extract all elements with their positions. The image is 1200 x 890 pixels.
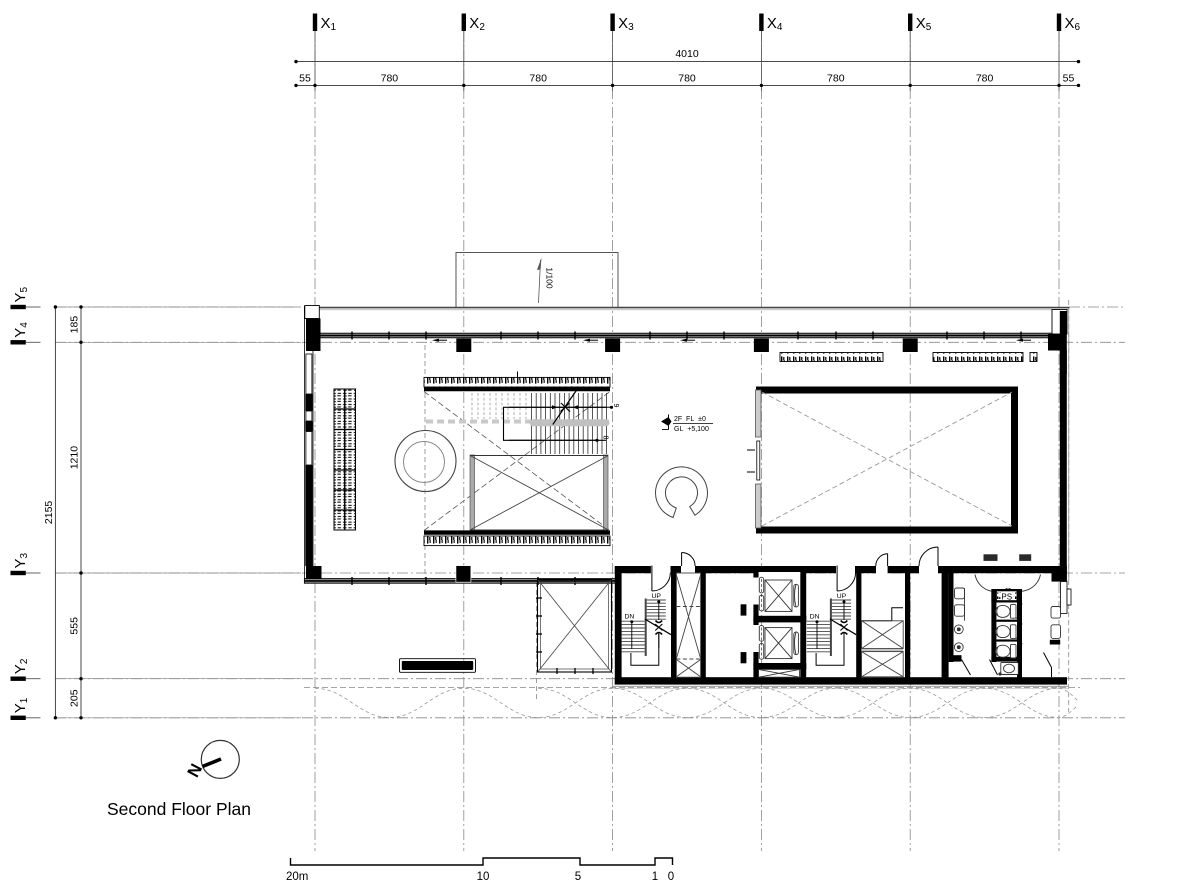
svg-text:10: 10 bbox=[477, 871, 490, 883]
svg-text:780: 780 bbox=[529, 73, 547, 85]
svg-text:555: 555 bbox=[69, 617, 81, 635]
svg-text:2F FL ±0: 2F FL ±0 bbox=[674, 416, 706, 423]
svg-text:780: 780 bbox=[678, 73, 696, 85]
svg-text:0: 0 bbox=[668, 871, 674, 883]
svg-text:55: 55 bbox=[1063, 73, 1075, 85]
svg-text:GL +5,100: GL +5,100 bbox=[674, 426, 709, 433]
svg-text:8: 8 bbox=[602, 436, 609, 440]
svg-text:UP: UP bbox=[652, 593, 662, 600]
svg-text:PS: PS bbox=[1001, 593, 1012, 602]
svg-text:205: 205 bbox=[69, 689, 81, 707]
svg-text:780: 780 bbox=[381, 73, 399, 85]
svg-text:1210: 1210 bbox=[69, 446, 81, 470]
svg-text:20m: 20m bbox=[286, 871, 308, 883]
svg-text:DN: DN bbox=[625, 614, 635, 621]
svg-text:4010: 4010 bbox=[675, 48, 699, 60]
svg-text:780: 780 bbox=[976, 73, 994, 85]
svg-text:Second Floor Plan: Second Floor Plan bbox=[107, 799, 251, 819]
svg-text:5: 5 bbox=[575, 871, 581, 883]
svg-text:UP: UP bbox=[837, 593, 847, 600]
svg-text:780: 780 bbox=[827, 73, 845, 85]
svg-text:9: 9 bbox=[612, 404, 619, 408]
svg-text:2155: 2155 bbox=[43, 501, 55, 525]
svg-text:DN: DN bbox=[810, 614, 820, 621]
svg-text:55: 55 bbox=[299, 73, 311, 85]
svg-text:1/100: 1/100 bbox=[545, 267, 555, 289]
svg-text:1: 1 bbox=[652, 871, 658, 883]
svg-text:185: 185 bbox=[69, 316, 81, 334]
